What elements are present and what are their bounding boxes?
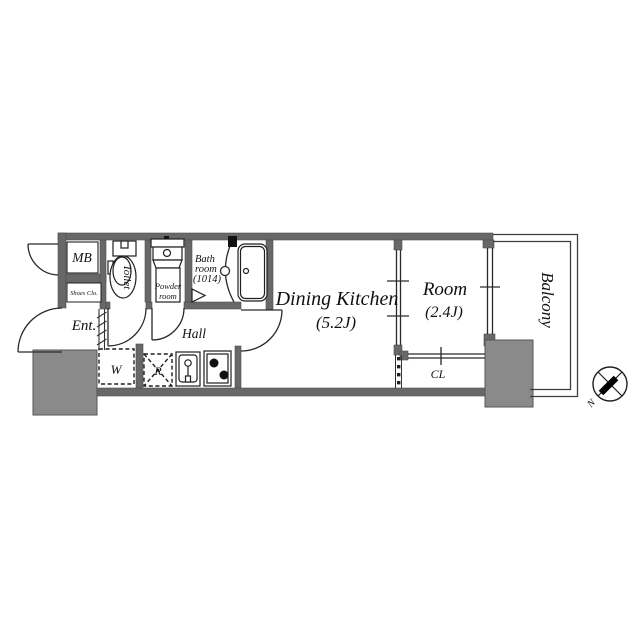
wall-top xyxy=(58,233,493,240)
room-size: (2.4J) xyxy=(425,304,463,321)
stove-icon xyxy=(204,351,231,386)
wall-end-cap-top-right xyxy=(483,240,494,248)
floor-plan-drawing: N Dining Kitchen (5.2J) Room (2.4J) Balc… xyxy=(0,0,640,640)
wall-bottom xyxy=(96,388,485,396)
powder-room-door-arc xyxy=(152,308,184,340)
wall-left xyxy=(58,233,66,308)
wall-toilet-powder xyxy=(145,240,151,302)
shoes-closet-label: Shoes Clo. xyxy=(70,290,98,297)
floor-plan-page: N Dining Kitchen (5.2J) Room (2.4J) Balc… xyxy=(0,0,640,640)
bath-window-block xyxy=(228,236,237,247)
toilet-door-arc xyxy=(108,308,146,346)
dining-kitchen-label: Dining Kitchen xyxy=(275,288,399,310)
dining-kitchen-size: (5.2J) xyxy=(316,313,356,332)
powder-room-label-line1: Powder xyxy=(154,281,182,291)
wall-hall-top-c xyxy=(184,302,241,309)
meter-box-door-arc xyxy=(28,244,58,275)
wall-hall-top-b xyxy=(146,302,152,309)
compass-icon: N xyxy=(585,367,627,411)
refrigerator-label: R xyxy=(153,364,162,378)
room-label: Room xyxy=(422,279,467,300)
entrance-door-arc xyxy=(18,308,62,352)
washer-label: W xyxy=(111,362,123,377)
entrance-label: Ent. xyxy=(71,318,97,334)
bath-door-curve xyxy=(221,246,235,302)
kitchen-sink-icon xyxy=(176,352,200,386)
bathtub-icon xyxy=(238,244,267,301)
wall-powder-bath xyxy=(185,240,192,302)
meter-box-label: MB xyxy=(71,250,92,265)
bath-room-label-line3: (1014) xyxy=(193,274,221,285)
balcony-label: Balcony xyxy=(538,272,557,328)
closet-label: CL xyxy=(431,367,446,381)
wall-partition-top xyxy=(394,240,402,250)
entrance-step-edge xyxy=(97,309,107,350)
room-window xyxy=(480,248,500,334)
dk-door-arc xyxy=(241,310,282,351)
closet-door xyxy=(408,347,485,365)
toilet-label: Toilet xyxy=(121,265,133,291)
wall-hall-top-a xyxy=(106,302,110,309)
pillar-right xyxy=(485,340,533,407)
wall-stub-kitchen-right xyxy=(235,346,241,390)
hall-label: Hall xyxy=(181,326,206,341)
compass-north-label: N xyxy=(585,396,599,410)
bath-door-marker xyxy=(192,289,205,302)
wall-stub-kitchen-left xyxy=(136,344,143,392)
powder-room-label-line2: room xyxy=(159,291,177,301)
pillar-left xyxy=(33,350,97,415)
